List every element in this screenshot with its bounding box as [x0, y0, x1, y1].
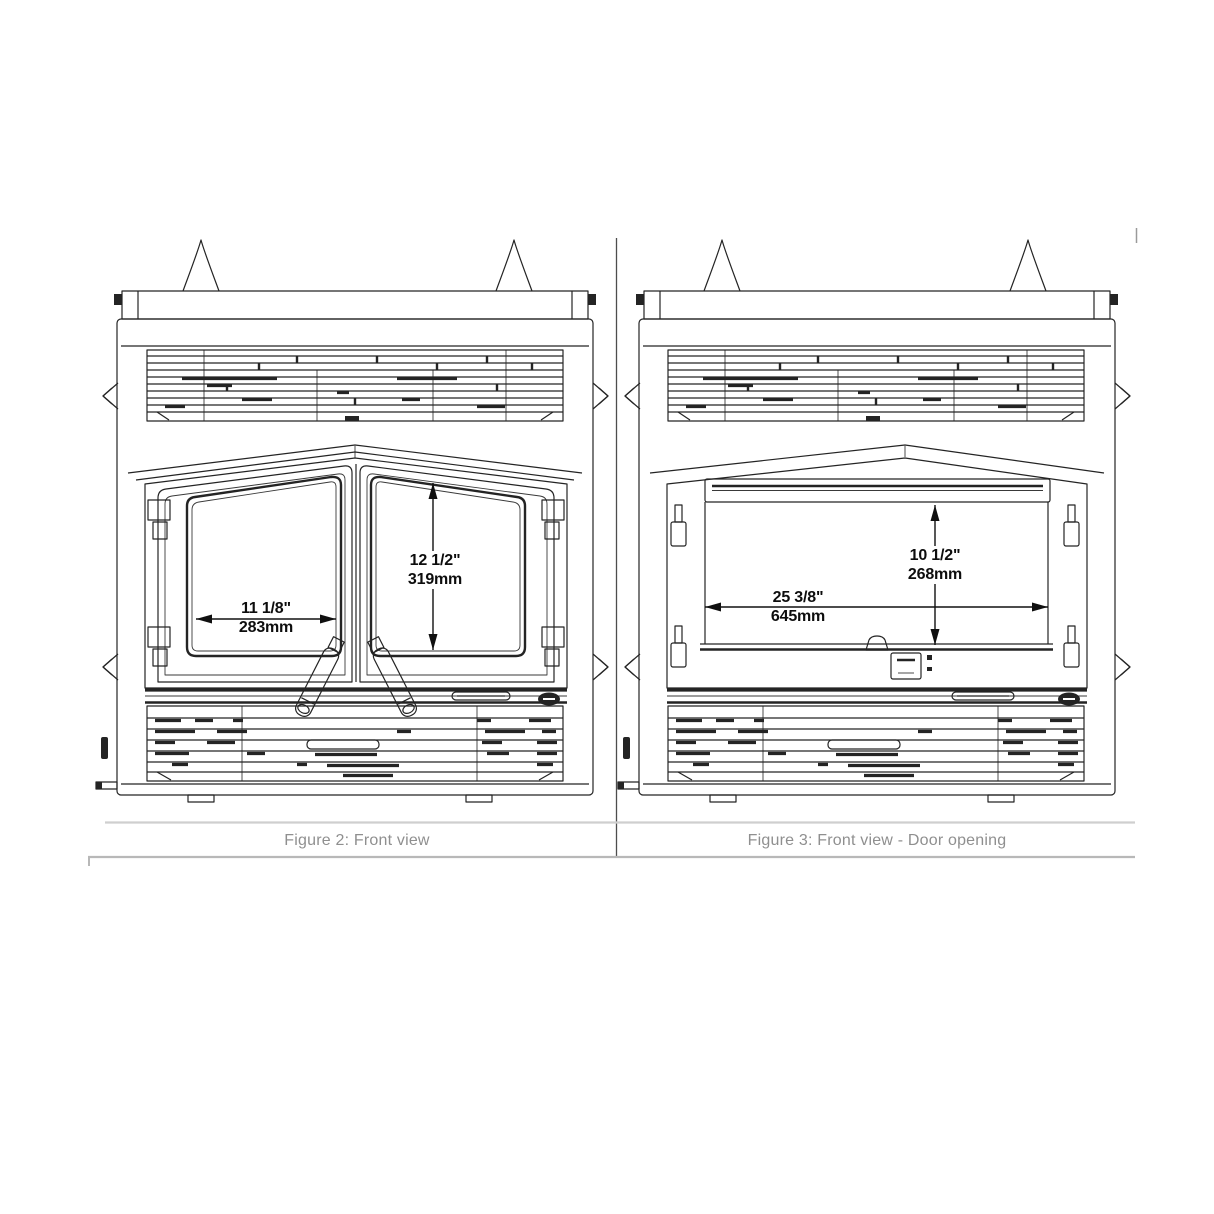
- fig2-height-dimension-label: 12 1/2" 319mm: [405, 551, 465, 589]
- technical-drawing-canvas: [0, 0, 1214, 1214]
- top-louver-grille: [668, 350, 1084, 421]
- fig2-width-dimension-label: 11 1/8" 283mm: [239, 599, 293, 637]
- top-band: [636, 291, 1118, 319]
- bottom-louver-grille: [147, 706, 563, 781]
- fig3-width-mm: 645mm: [771, 607, 825, 626]
- page: 11 1/8" 283mm 12 1/2" 319mm 25 3/8" 645m…: [0, 0, 1214, 1214]
- figure2-dimension-arrows: [196, 483, 438, 650]
- figure3-front-view-drawing: [618, 240, 1130, 802]
- fig2-height-mm: 319mm: [408, 570, 462, 589]
- fig2-width-inches: 11 1/8": [239, 599, 293, 618]
- figure2-front-view-drawing: [96, 240, 608, 802]
- facade-arch: [650, 445, 1104, 688]
- figure2-caption: Figure 2: Front view: [284, 832, 429, 850]
- hanger-bracket-icon: [704, 240, 1046, 291]
- firebox-opening: [671, 479, 1079, 679]
- fig3-width-dimension-label: 25 3/8" 645mm: [771, 588, 825, 626]
- top-louver-grille: [147, 350, 563, 421]
- fig3-height-dimension-label: 10 1/2" 268mm: [905, 546, 965, 584]
- lower-sill-band: [145, 690, 567, 706]
- double-door-assembly: [148, 464, 564, 682]
- door-latch-pin: [671, 505, 1079, 667]
- lower-sill-band: [667, 690, 1087, 706]
- fig2-height-inches: 12 1/2": [408, 551, 462, 570]
- control-box: [891, 653, 932, 679]
- fig3-width-inches: 25 3/8": [771, 588, 825, 607]
- figure-table-rules: [88, 228, 1137, 866]
- fig3-height-inches: 10 1/2": [908, 546, 962, 565]
- fig2-width-mm: 283mm: [239, 618, 293, 637]
- top-band: [114, 291, 596, 319]
- figure3-caption: Figure 3: Front view - Door opening: [748, 832, 1007, 850]
- figure3-dimension-arrows: [705, 505, 1048, 645]
- fig3-height-mm: 268mm: [908, 565, 962, 584]
- hanger-bracket-icon: [183, 240, 532, 291]
- bottom-louver-grille: [668, 706, 1084, 781]
- facade-arch: [128, 445, 582, 688]
- sill-tab: [866, 636, 888, 650]
